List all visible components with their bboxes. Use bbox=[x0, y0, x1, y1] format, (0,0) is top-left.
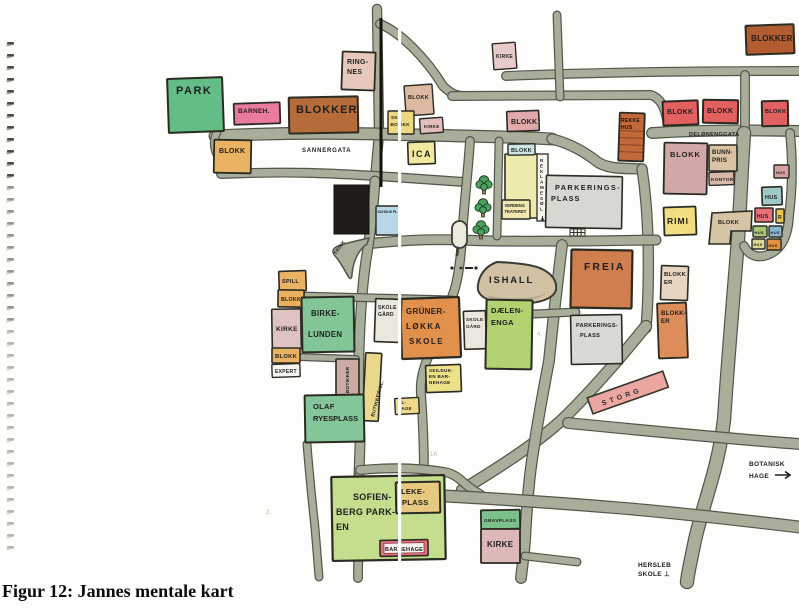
svg-text:E: E bbox=[540, 190, 543, 195]
svg-text:BLOKK: BLOKK bbox=[718, 220, 739, 226]
svg-text:HUS: HUS bbox=[765, 195, 778, 201]
svg-text:ER: ER bbox=[661, 319, 670, 325]
svg-text:BLOKKER: BLOKKER bbox=[751, 34, 793, 43]
svg-text:BARNEHAGE: BARNEHAGE bbox=[385, 547, 423, 553]
svg-text:GÅRD: GÅRD bbox=[466, 323, 481, 329]
svg-text:BLOKK: BLOKK bbox=[408, 95, 429, 101]
svg-text:KIRKE: KIRKE bbox=[276, 326, 298, 333]
svg-text:FREIA: FREIA bbox=[584, 261, 626, 273]
svg-text:LUNDEN: LUNDEN bbox=[308, 330, 342, 339]
svg-text:SKOLE: SKOLE bbox=[378, 305, 397, 311]
svg-text:SPILL: SPILL bbox=[282, 279, 299, 285]
svg-text:SEILDUK-: SEILDUK- bbox=[429, 368, 453, 373]
svg-text:EN BAR-: EN BAR- bbox=[429, 374, 450, 379]
svg-text:BOTANISK: BOTANISK bbox=[749, 461, 785, 468]
svg-text:KONTOR: KONTOR bbox=[711, 177, 734, 183]
svg-text:SANNERGATA: SANNERGATA bbox=[302, 148, 351, 154]
svg-text:R: R bbox=[778, 215, 782, 221]
svg-text:SKOLE ⊥: SKOLE ⊥ bbox=[638, 570, 670, 578]
svg-text:DELØNENGGATA: DELØNENGGATA bbox=[689, 132, 739, 138]
svg-text:VERDENS: VERDENS bbox=[505, 203, 525, 208]
svg-text:PRIS: PRIS bbox=[712, 158, 727, 164]
svg-text:ICA: ICA bbox=[412, 149, 432, 159]
svg-text:4.: 4. bbox=[537, 332, 543, 338]
svg-text:Ø: Ø bbox=[540, 201, 544, 206]
svg-text:OLAF: OLAF bbox=[313, 402, 335, 411]
svg-text:HUS: HUS bbox=[757, 214, 769, 220]
svg-text:2.: 2. bbox=[266, 509, 272, 516]
svg-text:BLOKK: BLOKK bbox=[511, 119, 537, 126]
svg-text:BLOKK: BLOKK bbox=[281, 297, 301, 303]
svg-text:HUS: HUS bbox=[755, 230, 764, 235]
svg-text:RIMI: RIMI bbox=[667, 216, 689, 226]
svg-text:BLOKK: BLOKK bbox=[219, 148, 245, 155]
svg-text:RING-: RING- bbox=[347, 59, 369, 66]
svg-text:PARK: PARK bbox=[176, 85, 212, 97]
svg-text:BLOKK: BLOKK bbox=[664, 272, 687, 278]
svg-text:REKKE: REKKE bbox=[621, 118, 640, 124]
svg-text:BLOKK: BLOKK bbox=[707, 108, 733, 115]
svg-text:HUS: HUS bbox=[621, 125, 633, 131]
svg-text:SKOLE: SKOLE bbox=[409, 337, 444, 346]
svg-text:HUS: HUS bbox=[771, 230, 780, 235]
svg-text:ENGA: ENGA bbox=[491, 318, 514, 327]
svg-text:L: L bbox=[540, 174, 543, 179]
svg-text:NES: NES bbox=[347, 69, 362, 76]
svg-text:HUS: HUS bbox=[769, 244, 778, 248]
svg-text:BLOKK: BLOKK bbox=[511, 148, 532, 154]
svg-text:PLASS: PLASS bbox=[551, 194, 580, 203]
svg-text:S: S bbox=[540, 196, 543, 201]
svg-text:HUS: HUS bbox=[776, 170, 785, 175]
svg-text:LØKKA: LØKKA bbox=[406, 322, 442, 331]
svg-text:BOTIKKER: BOTIKKER bbox=[345, 366, 350, 393]
svg-text:SCHOUS PL: SCHOUS PL bbox=[378, 210, 398, 214]
svg-text:Figur 12: Jannes mentale kart: Figur 12: Jannes mentale kart bbox=[2, 581, 234, 601]
svg-text:KIRKE: KIRKE bbox=[487, 540, 514, 549]
svg-text:SOFIEN-: SOFIEN- bbox=[353, 492, 392, 502]
svg-text:HAGE: HAGE bbox=[749, 473, 769, 480]
svg-text:TEATERET: TEATERET bbox=[505, 209, 527, 214]
svg-text:PLASS: PLASS bbox=[580, 333, 600, 339]
svg-text:E: E bbox=[540, 163, 543, 168]
svg-text:L: L bbox=[540, 207, 543, 212]
svg-text:BERG PARK-: BERG PARK- bbox=[336, 507, 395, 517]
svg-text:BIRKE-: BIRKE- bbox=[311, 309, 340, 318]
svg-text:GRAVPLASS: GRAVPLASS bbox=[484, 518, 517, 524]
svg-text:BLOKK-: BLOKK- bbox=[661, 311, 686, 317]
svg-text:GRÜNER-: GRÜNER- bbox=[406, 307, 445, 316]
svg-text:HERSLEB: HERSLEB bbox=[638, 562, 671, 569]
svg-text:BLOKK: BLOKK bbox=[667, 109, 693, 116]
svg-text:ISHALL: ISHALL bbox=[489, 275, 534, 286]
svg-text:M: M bbox=[540, 185, 544, 190]
svg-text:HUS: HUS bbox=[754, 243, 763, 247]
svg-text:KIRKE: KIRKE bbox=[496, 54, 513, 60]
svg-text:KIRKE: KIRKE bbox=[424, 124, 440, 129]
svg-text:GÅRD: GÅRD bbox=[378, 311, 394, 318]
svg-text:PARKERINGS-: PARKERINGS- bbox=[555, 183, 621, 192]
svg-text:DÆLEN-: DÆLEN- bbox=[491, 306, 523, 315]
svg-text:BLOKK: BLOKK bbox=[670, 150, 701, 159]
svg-text:BLOKK: BLOKK bbox=[765, 109, 786, 115]
svg-text:1l.: 1l. bbox=[676, 186, 683, 192]
svg-text:PARKERINGS-: PARKERINGS- bbox=[576, 323, 618, 329]
svg-text:BLOKKER: BLOKKER bbox=[296, 104, 357, 116]
svg-text:NEHAGE: NEHAGE bbox=[429, 380, 450, 385]
svg-text:EN: EN bbox=[336, 522, 349, 532]
svg-text:LEKE-: LEKE- bbox=[401, 487, 425, 496]
svg-text:16.: 16. bbox=[430, 452, 439, 458]
svg-text:EXPERT: EXPERT bbox=[275, 369, 297, 375]
svg-text:PLASS: PLASS bbox=[402, 498, 429, 507]
svg-text:BLOKK: BLOKK bbox=[275, 354, 298, 360]
svg-text:RYESPLASS: RYESPLASS bbox=[313, 414, 358, 423]
svg-text:BUNN-: BUNN- bbox=[712, 150, 733, 156]
svg-text:BARNEH.: BARNEH. bbox=[238, 108, 270, 115]
svg-text:SKOLE: SKOLE bbox=[466, 317, 483, 322]
svg-text:ER: ER bbox=[664, 280, 673, 286]
